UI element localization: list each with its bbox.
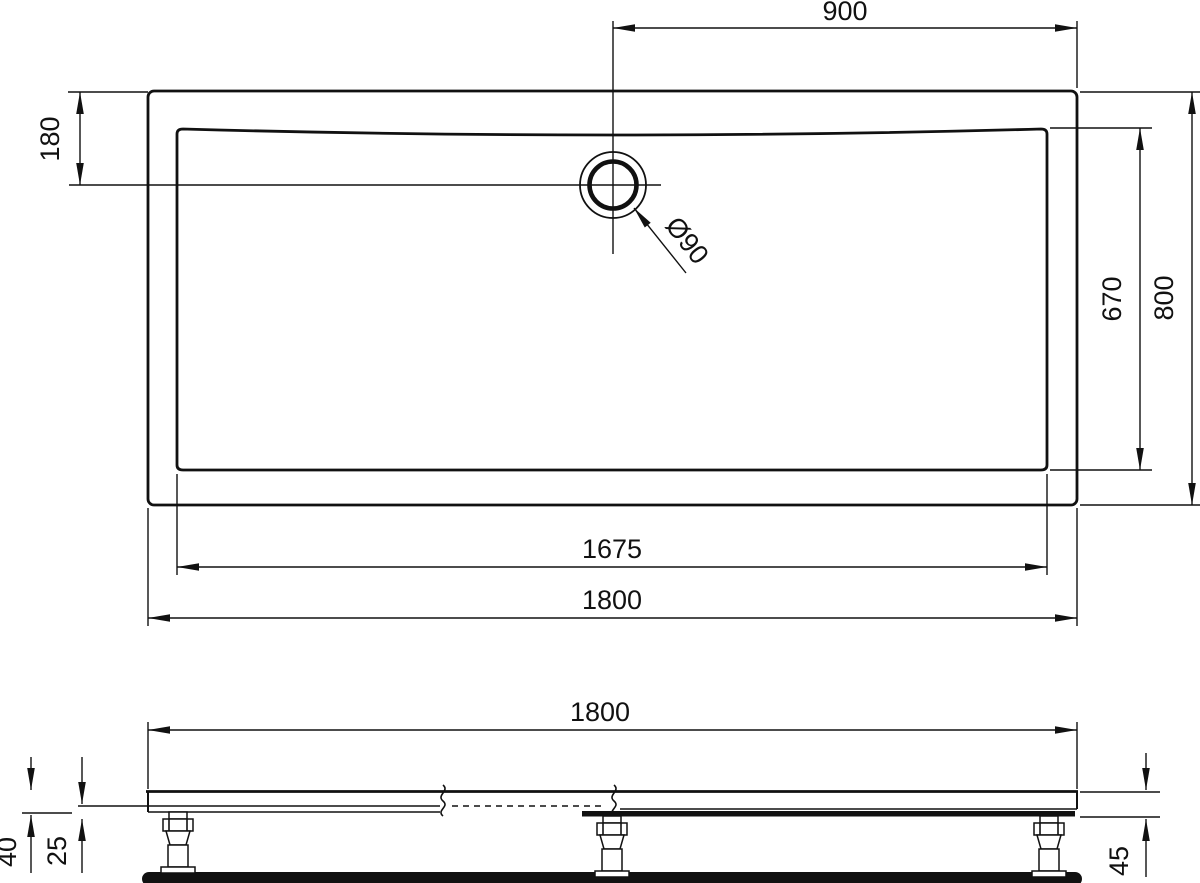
leg-foot	[595, 871, 629, 877]
support-rail	[582, 811, 1075, 817]
dim-total-height: 45	[1080, 753, 1160, 877]
dim-label-45: 45	[1104, 846, 1134, 876]
leg-cylinder	[168, 845, 188, 867]
dim-base-height: 25	[42, 757, 82, 873]
leg-nut	[163, 819, 193, 831]
technical-drawing: Ø90 900 180 670 800	[0, 0, 1200, 883]
dim-label-drain-diameter: Ø90	[660, 211, 715, 270]
dim-label-670: 670	[1097, 276, 1127, 321]
break-line-left	[441, 785, 445, 816]
leg-left	[161, 812, 195, 873]
leg-right	[1032, 816, 1066, 877]
leg-cylinder	[1039, 849, 1059, 871]
side-view: 1800	[0, 697, 1160, 883]
dim-basin-length: 1675	[177, 474, 1047, 575]
dim-label-180: 180	[35, 116, 65, 161]
leg-nut	[1034, 823, 1064, 835]
leg-foot	[1032, 871, 1066, 877]
leg-nut	[597, 823, 627, 835]
leg-stem	[1040, 816, 1058, 823]
dim-overall-length-side: 1800	[148, 697, 1077, 789]
leg-stem	[169, 812, 187, 819]
dim-basin-width: 670	[1050, 128, 1152, 470]
dim-label-1800-plan: 1800	[582, 585, 642, 615]
dim-label-800: 800	[1149, 275, 1179, 320]
dim-label-40: 40	[0, 837, 22, 867]
dim-label-25: 25	[42, 836, 72, 866]
plan-view: Ø90 900 180 670 800	[35, 0, 1200, 626]
drawing-canvas: Ø90 900 180 670 800	[0, 0, 1200, 883]
drain-symbol: Ø90	[69, 21, 715, 273]
plan-basin-edge	[177, 129, 1047, 470]
leg-cylinder	[602, 849, 622, 871]
dim-label-900: 900	[822, 0, 867, 26]
leg-taper	[600, 835, 624, 849]
leg-taper	[166, 831, 190, 845]
leg-foot	[161, 867, 195, 873]
leg-taper	[1037, 835, 1061, 849]
dim-drain-offset-horizontal: 900	[613, 0, 1077, 88]
leg-middle	[595, 816, 629, 877]
dim-label-1675: 1675	[582, 534, 642, 564]
dim-label-1800-side: 1800	[570, 697, 630, 727]
leg-stem	[603, 816, 621, 823]
dim-drain-offset-vertical: 180	[35, 92, 148, 185]
side-tray-profile	[78, 785, 1078, 817]
